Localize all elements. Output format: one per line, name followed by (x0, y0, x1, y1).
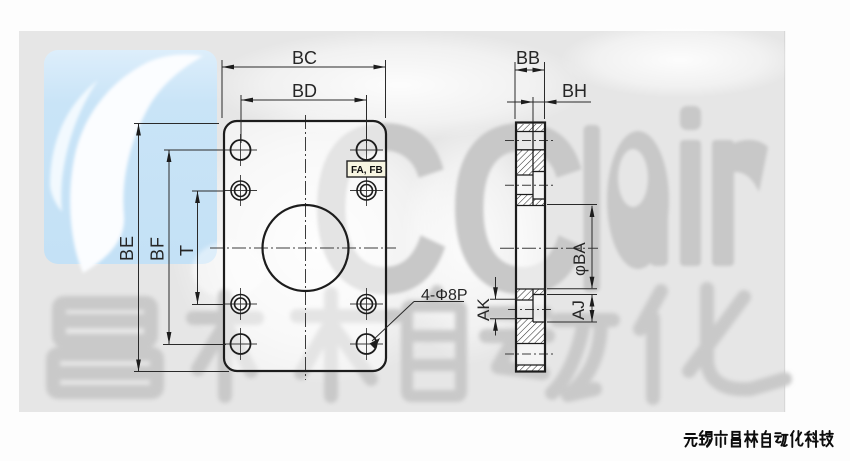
svg-text:AK: AK (474, 298, 493, 321)
svg-text:FA, FB: FA, FB (351, 165, 383, 176)
svg-text:BE: BE (117, 235, 137, 261)
svg-text:BB: BB (516, 48, 540, 68)
svg-text:φBA: φBA (570, 242, 589, 276)
svg-text:BD: BD (292, 81, 317, 101)
svg-text:T: T (177, 245, 197, 256)
svg-text:BH: BH (562, 81, 587, 101)
svg-text:4-Φ8P: 4-Φ8P (421, 287, 468, 304)
svg-text:AJ: AJ (569, 300, 588, 320)
svg-text:BF: BF (148, 236, 168, 261)
svg-text:BC: BC (292, 48, 317, 68)
